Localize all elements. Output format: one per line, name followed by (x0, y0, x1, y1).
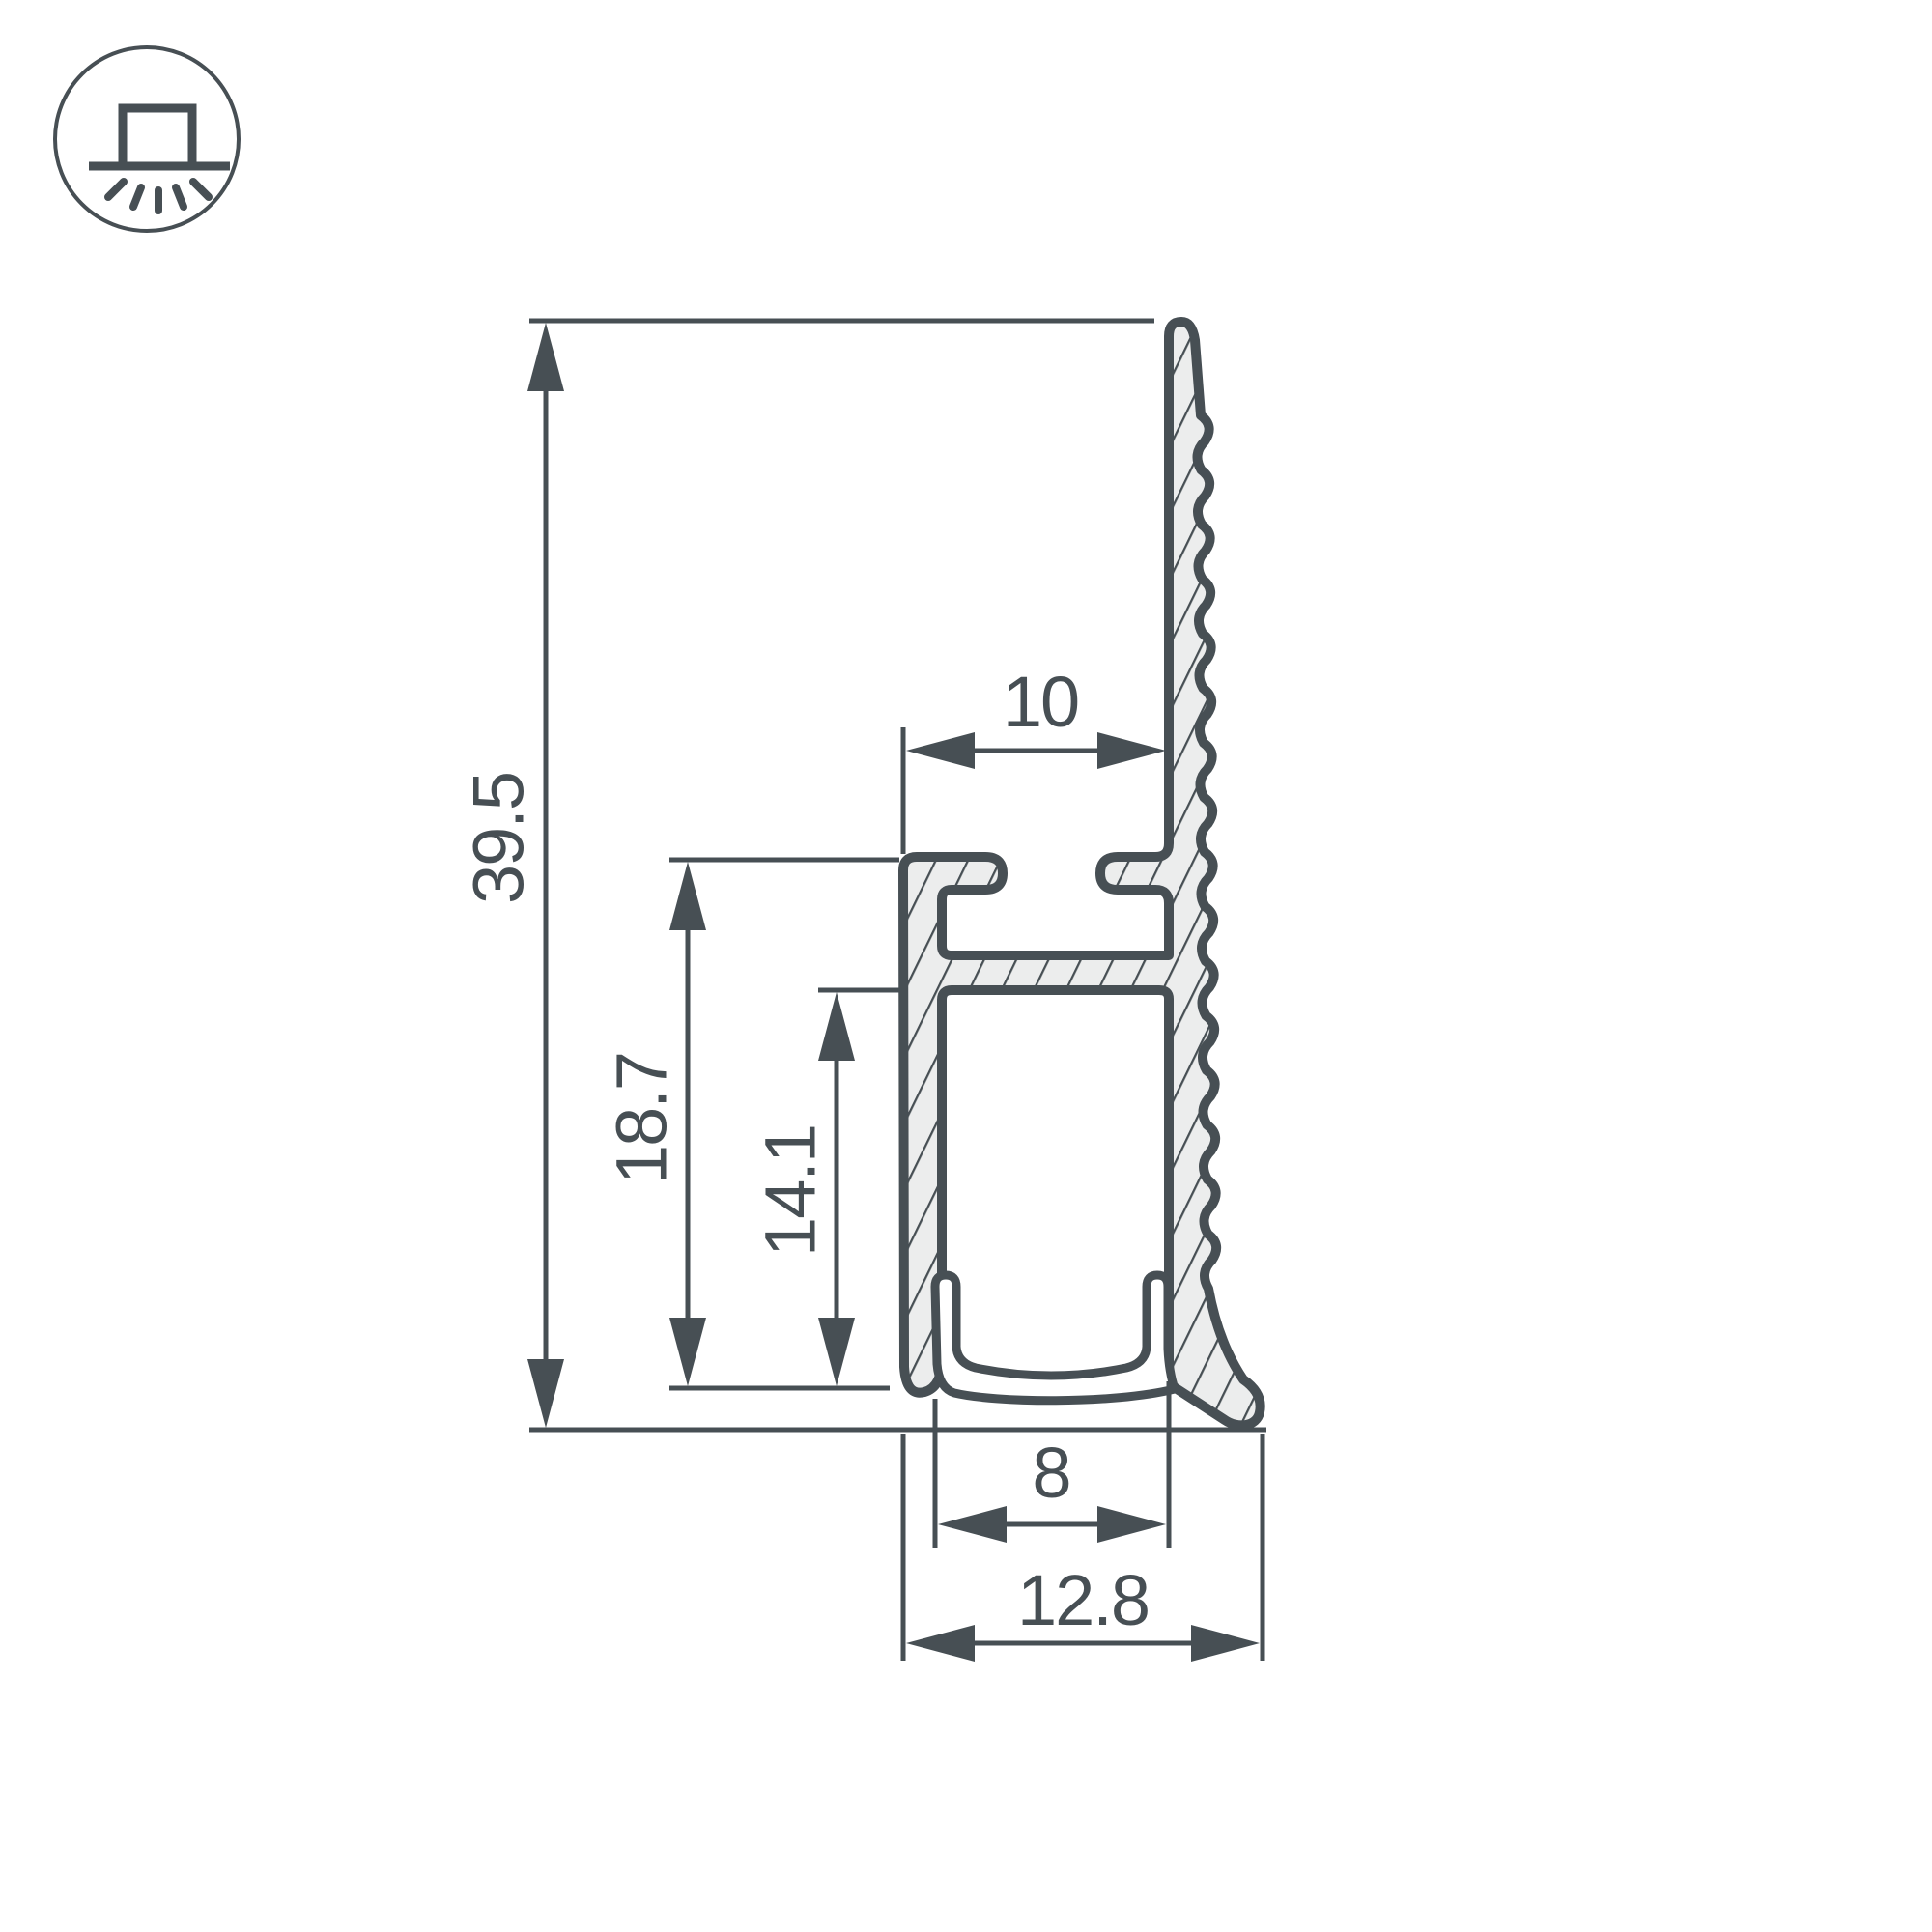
profile-cross-section (903, 322, 1261, 1425)
dimension-overall-width: 12.8 (906, 1560, 1260, 1662)
arrow-up-icon (527, 323, 564, 391)
diffuser-cover (935, 1275, 1175, 1401)
dimension-label-mount-height: 18.7 (602, 1053, 682, 1184)
icon-circle (55, 47, 239, 231)
arrow-left-icon (938, 1506, 1007, 1543)
arrow-left-icon (906, 732, 975, 769)
arrow-down-icon (527, 1359, 564, 1428)
dimension-led-channel-width: 8 (938, 1433, 1166, 1543)
aluminum-body (903, 322, 1261, 1425)
drawing-canvas: 39.5 18.7 14.1 10 8 12.8 (0, 0, 1932, 1932)
dimension-label-overall-height: 39.5 (459, 773, 539, 904)
icon-luminaire-box (123, 108, 192, 166)
dimension-mount-height: 18.7 (602, 862, 707, 1386)
arrow-up-icon (818, 992, 855, 1061)
surface-mounted-light-icon (55, 47, 239, 231)
arrow-left-icon (906, 1625, 975, 1662)
dimension-label-channel-height: 14.1 (751, 1125, 831, 1257)
dimension-top-slot-width: 10 (906, 662, 1166, 769)
dimension-label-overall-width: 12.8 (1017, 1560, 1149, 1640)
arrow-up-icon (669, 862, 706, 930)
icon-light-rays (108, 182, 209, 211)
arrow-right-icon (1191, 1625, 1260, 1662)
profile-technical-drawing: 39.5 18.7 14.1 10 8 12.8 (0, 0, 1932, 1932)
dimension-label-led-channel-width: 8 (1032, 1433, 1069, 1513)
arrow-down-icon (669, 1318, 706, 1386)
dimension-label-top-slot-width: 10 (1003, 662, 1078, 742)
arrow-right-icon (1097, 1506, 1166, 1543)
dimension-channel-height: 14.1 (751, 992, 856, 1386)
arrow-right-icon (1097, 732, 1166, 769)
arrow-down-icon (818, 1318, 855, 1386)
dimension-overall-height: 39.5 (459, 323, 565, 1428)
